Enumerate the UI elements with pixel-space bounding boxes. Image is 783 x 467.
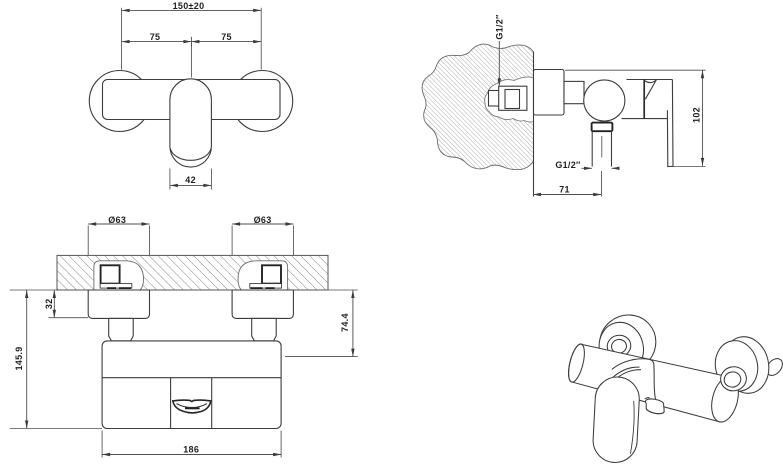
- svg-text:75: 75: [221, 32, 232, 42]
- svg-text:Ø63: Ø63: [254, 215, 272, 225]
- svg-text:186: 186: [183, 444, 199, 454]
- svg-text:G1/2″: G1/2″: [555, 160, 581, 170]
- svg-text:32: 32: [44, 298, 54, 309]
- svg-text:G1/2″: G1/2″: [495, 14, 505, 40]
- svg-text:75: 75: [150, 32, 161, 42]
- svg-text:102: 102: [692, 107, 702, 123]
- svg-text:150±20: 150±20: [173, 1, 205, 11]
- svg-text:74.4: 74.4: [340, 313, 350, 332]
- svg-text:145.9: 145.9: [14, 346, 24, 370]
- svg-text:Ø63: Ø63: [108, 215, 126, 225]
- svg-text:42: 42: [185, 175, 196, 185]
- svg-text:71: 71: [559, 184, 570, 194]
